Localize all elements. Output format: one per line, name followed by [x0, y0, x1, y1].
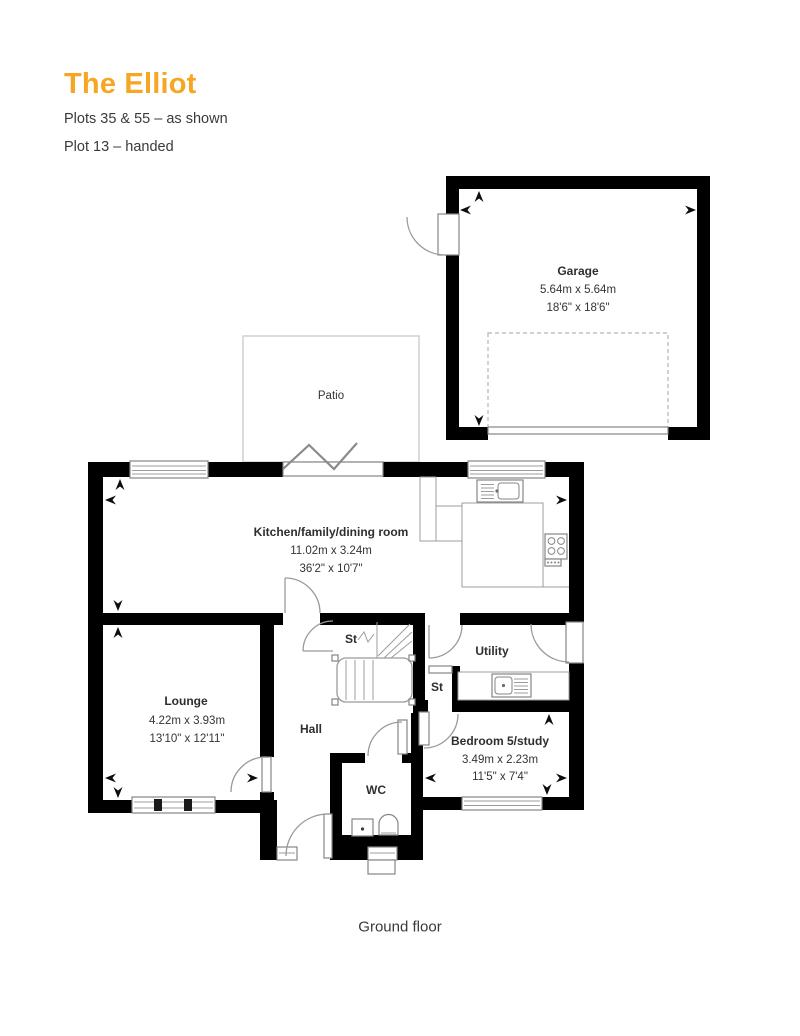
garage-side-door-icon [407, 214, 459, 255]
kitchen-utility-door-icon [429, 625, 462, 658]
kitchen-dim-imperial: 36'2" x 10'7" [299, 563, 362, 575]
porch-window-icon [368, 847, 397, 860]
floor-label: Ground floor [358, 919, 441, 936]
store2-label: St [431, 680, 443, 694]
wc-door-icon [368, 720, 407, 756]
store1-door-icon [303, 621, 333, 651]
utility-sink-icon [492, 674, 531, 697]
utility-external-door-icon [531, 622, 583, 663]
kitchen-window-right-icon [468, 461, 545, 478]
garage-up-and-over-door [488, 427, 668, 434]
floorplan-page: The Elliot Plots 35 & 55 – as shown Plot… [0, 0, 800, 1036]
bedroom5-label: Bedroom 5/study [451, 734, 549, 748]
lounge-label: Lounge [164, 694, 207, 708]
lounge-door-icon [231, 757, 271, 792]
utility-label: Utility [475, 644, 508, 658]
lounge-dim-imperial: 13'10" x 12'11" [149, 733, 224, 745]
garage-label: Garage [557, 264, 598, 278]
bedroom-window-icon [462, 797, 542, 810]
hall-label: Hall [300, 722, 322, 736]
garage-door-dashed-outline [488, 333, 668, 434]
plots-line-2: Plot 13 – handed [64, 139, 174, 155]
bedroom5-dim-metric: 3.49m x 2.23m [462, 754, 538, 766]
store2-door-icon [429, 666, 452, 673]
plots-line-1: Plots 35 & 55 – as shown [64, 111, 228, 127]
wc-toilet-icon [379, 815, 398, 836]
kitchen-dim-metric: 11.02m x 3.24m [290, 545, 372, 557]
garage-dim-imperial: 18'6" x 18'6" [546, 302, 609, 314]
bedroom5-dim-imperial: 11'5" x 7'4" [472, 771, 528, 783]
wc-basin-icon [352, 819, 373, 836]
kitchen-label: Kitchen/family/dining room [254, 525, 409, 539]
kitchen-sink-icon [477, 480, 523, 502]
store1-label: St [345, 632, 357, 646]
kitchen-window-left-icon [130, 461, 208, 478]
garage-dim-metric: 5.64m x 5.64m [540, 284, 616, 296]
wc-label: WC [366, 783, 386, 797]
porch-step [368, 860, 395, 874]
kitchen-hall-door-icon [285, 578, 320, 613]
hob-icon [545, 534, 567, 566]
plan-title: The Elliot [64, 68, 197, 101]
lounge-window-icon [132, 797, 215, 813]
floorplan-drawing [0, 0, 800, 1036]
patio-label: Patio [318, 390, 344, 402]
lounge-dim-metric: 4.22m x 3.93m [149, 715, 225, 727]
